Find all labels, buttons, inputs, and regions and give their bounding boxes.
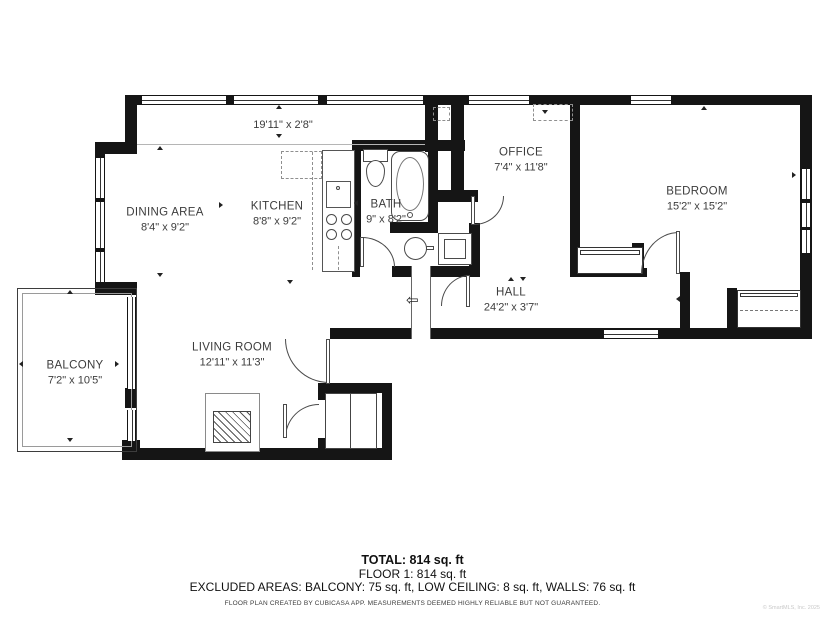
tick-marker <box>676 296 680 302</box>
low-ceiling-dashed-area <box>433 107 450 121</box>
kitchen-upper-cabinet <box>281 151 322 179</box>
room-name: DINING AREA <box>126 206 203 221</box>
label-living-room: LIVING ROOM 12'11" x 11'3" <box>192 341 272 370</box>
room-dims: 8'4" x 9'2" <box>126 221 203 235</box>
label-bath: BATH 9" x 8'2" <box>366 198 406 227</box>
kitchen-counter-edge <box>312 152 313 270</box>
tick-marker <box>115 361 119 367</box>
door-leaf <box>466 275 470 307</box>
window <box>604 329 658 339</box>
wall <box>330 328 812 339</box>
room-dims: 7'4" x 11'8" <box>494 161 547 175</box>
room-name: BEDROOM <box>666 185 728 200</box>
tick-marker <box>276 105 282 109</box>
storage-shelf <box>325 393 377 449</box>
room-dims: 7'2" x 10'5" <box>46 374 103 388</box>
disclaimer-text: FLOOR PLAN CREATED BY CUBICASA APP. MEAS… <box>0 600 825 607</box>
label-dining-area: DINING AREA 8'4" x 9'2" <box>126 206 203 235</box>
room-dims: 15'2" x 15'2" <box>666 200 728 214</box>
fireplace-icon <box>213 411 251 443</box>
tick-marker <box>354 200 358 206</box>
toilet-icon <box>366 160 385 187</box>
sink-tap-icon <box>426 246 434 250</box>
window <box>801 203 811 227</box>
label-hall: HALL 24'2" x 3'7" <box>484 286 538 315</box>
tick-marker <box>542 110 548 114</box>
stove-burner-icon <box>326 214 337 225</box>
kitchen-sink <box>326 181 351 208</box>
balcony-sliding-door <box>127 297 136 389</box>
wall <box>680 272 690 328</box>
room-name: LIVING ROOM <box>192 341 272 356</box>
tick-marker <box>67 290 73 294</box>
tick-marker <box>508 277 514 281</box>
closet-sliding-door <box>580 250 640 255</box>
door-opening <box>360 266 392 277</box>
door-leaf <box>360 237 364 267</box>
window <box>127 410 136 441</box>
bedroom-door-arc <box>641 232 679 274</box>
stove-burner-icon <box>341 214 352 225</box>
window <box>801 169 811 199</box>
faucet-icon <box>336 186 340 190</box>
window <box>95 158 105 198</box>
low-ceiling-dashed-area <box>533 104 573 121</box>
closet-sliding-door <box>740 293 798 297</box>
total-area-text: TOTAL: 814 sq. ft <box>0 553 825 567</box>
door-leaf <box>326 339 330 384</box>
low-ceiling-dims: 19'11" x 2'8" <box>253 118 313 132</box>
door-leaf <box>676 231 680 274</box>
tick-marker <box>67 438 73 442</box>
kitchen-cabinet-divider <box>338 246 339 270</box>
tick-marker <box>792 172 796 178</box>
tick-marker <box>701 106 707 110</box>
stove-burner-icon <box>326 229 337 240</box>
wall <box>382 383 392 455</box>
bathroom-sink-icon <box>404 237 427 260</box>
wall <box>727 288 737 328</box>
room-name: BATH <box>366 198 406 213</box>
door-leaf <box>471 196 475 225</box>
wall <box>128 448 392 460</box>
room-dims: 8'8" x 9'2" <box>251 215 304 229</box>
label-low-ceiling: 19'11" x 2'8" <box>253 118 313 132</box>
tick-marker <box>219 202 223 208</box>
room-name: HALL <box>484 286 538 301</box>
window <box>631 95 671 105</box>
label-office: OFFICE 7'4" x 11'8" <box>494 146 547 175</box>
door-leaf <box>283 404 287 438</box>
tub-faucet-icon <box>407 212 413 218</box>
door-arc <box>362 237 395 267</box>
label-kitchen: KITCHEN 8'8" x 9'2" <box>251 200 304 229</box>
wall <box>428 140 438 233</box>
floor-area-text: FLOOR 1: 814 sq. ft <box>0 567 825 581</box>
label-bedroom: BEDROOM 15'2" x 15'2" <box>666 185 728 214</box>
window <box>801 230 811 253</box>
label-balcony: BALCONY 7'2" x 10'5" <box>46 359 103 388</box>
shelf-divider <box>350 394 351 448</box>
window <box>95 252 105 282</box>
window <box>142 95 226 105</box>
stove-burner-icon <box>341 229 352 240</box>
floor-plan-canvas: ⇦ 19'11" x 2'8" DINING AREA 8'4" x 9'2" … <box>0 0 825 619</box>
door-arc <box>474 196 504 225</box>
room-name: KITCHEN <box>251 200 304 215</box>
room-dims: 24'2" x 3'7" <box>484 301 538 315</box>
tick-marker <box>157 146 163 150</box>
tick-marker <box>276 134 282 138</box>
window <box>327 95 423 105</box>
low-ceiling-boundary <box>137 144 425 145</box>
window <box>469 95 529 105</box>
window <box>95 202 105 248</box>
room-name: BALCONY <box>46 359 103 374</box>
watermark-text: © SmartMLS, Inc. 2025 <box>763 605 820 611</box>
washer-drum <box>444 239 466 259</box>
door-arc <box>285 404 319 438</box>
wall <box>451 95 464 195</box>
room-dims: 12'11" x 11'3" <box>192 356 272 370</box>
door-arc <box>285 339 329 383</box>
wall <box>318 383 392 393</box>
closet-shelf-dashed <box>740 310 798 311</box>
tick-marker <box>157 273 163 277</box>
room-dims: 9" x 8'2" <box>366 213 406 227</box>
room-name: OFFICE <box>494 146 547 161</box>
tick-marker <box>520 277 526 281</box>
window <box>234 95 318 105</box>
tick-marker <box>19 361 23 367</box>
excluded-areas-text: EXCLUDED AREAS: BALCONY: 75 sq. ft, LOW … <box>0 580 825 594</box>
tick-marker <box>287 280 293 284</box>
entry-arrow-icon: ⇦ <box>406 293 419 308</box>
